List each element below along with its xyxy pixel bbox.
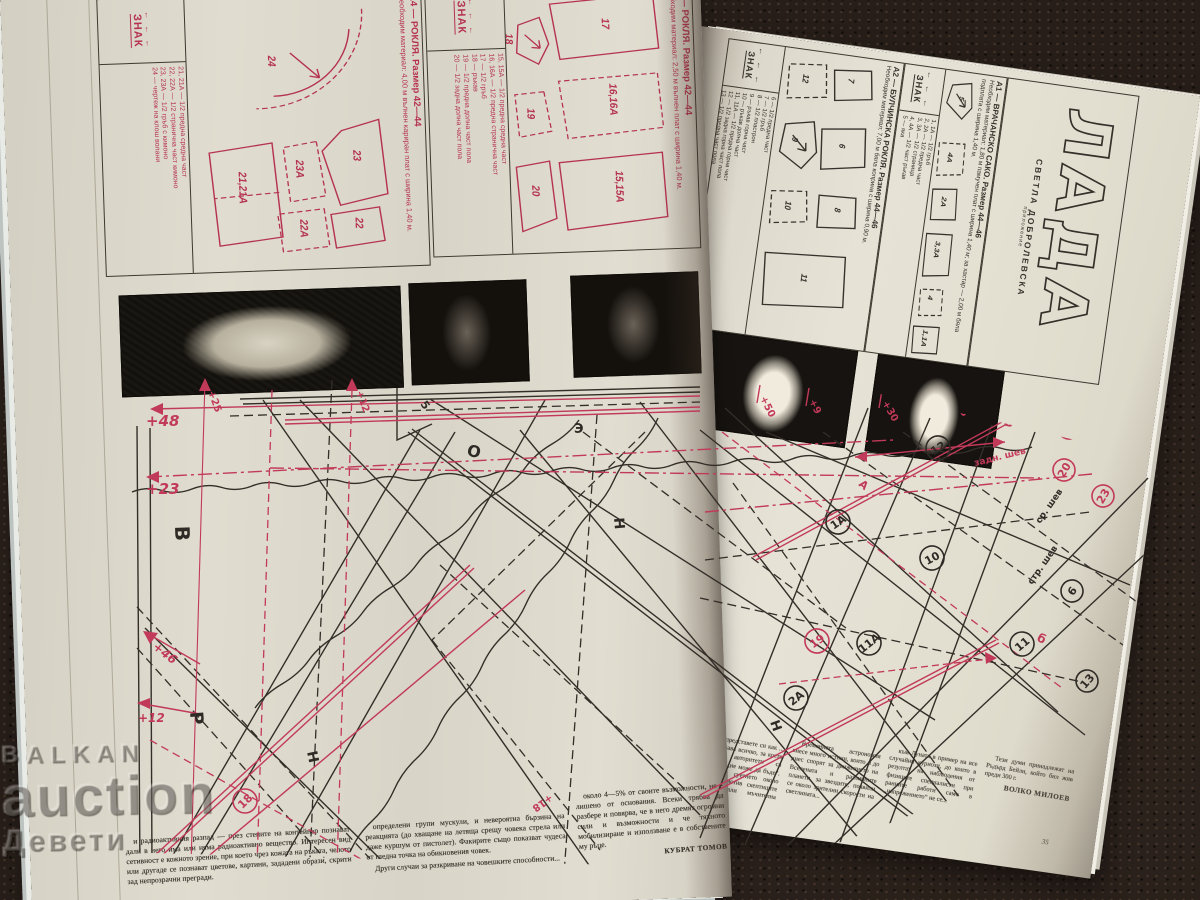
article-column-2: определени групи мускули, и невероятна б…: [365, 811, 568, 877]
article-column-r4: Тези думи принадлежат на Ръдърд Бейли, к…: [982, 754, 1075, 804]
piece-label: 20: [529, 184, 541, 197]
article-column-1: и радиоактивния разпад — през стените на…: [125, 824, 353, 889]
piece-label: 23А: [293, 159, 306, 179]
pattern-panel-a4: А4 — РОКЛЯ. Размер 42—44 Необходим матер…: [96, 0, 431, 277]
znak-block: ← ← ← ЗНАК: [723, 39, 785, 93]
panel-a3-piece-shapes: 20 18 19 17 16,16А 15,15А: [504, 0, 675, 254]
article-column-r2: Временната астрономия внесе много истини…: [785, 739, 882, 812]
piece-label: 1,1А: [919, 329, 929, 347]
fashion-photo-checked-dress: [119, 286, 404, 398]
piece-label: 17: [599, 18, 611, 31]
page-crease: [46, 0, 79, 900]
znak-block: ← ← ← ЗНАК: [425, 0, 505, 52]
znak-label: ЗНАК: [130, 14, 144, 48]
piece-label: 10: [783, 200, 795, 211]
znak-label: ЗНАК: [454, 0, 468, 34]
piece-label: 21,21А: [236, 171, 250, 204]
piece-label: 8: [833, 207, 844, 213]
notch-marks: ← ← ←: [466, 0, 476, 36]
article-text: и радиоактивния разпад — през стените на…: [125, 824, 353, 887]
piece-label: 15,15А: [613, 170, 626, 202]
piece-label: 23: [350, 149, 363, 162]
panel-a4-piece-shapes: 23 23А 22А 22 24 21,21А: [184, 0, 404, 273]
znak-block: ← ← ← ЗНАК: [97, 0, 185, 65]
article-column-r3: към Луната в пример на все случайни кури…: [883, 746, 978, 811]
piece-label: 6: [837, 143, 848, 149]
piece-label: 22А: [297, 218, 310, 238]
piece-label: 11: [799, 273, 810, 283]
piece-label: 22: [353, 216, 366, 229]
piece-label: 2А: [939, 195, 949, 208]
panel-a3-legend: 15, 15А — 1/2 предна средна част 16, 16А…: [427, 49, 512, 257]
fashion-photo-dark: [408, 279, 529, 385]
piece-label: 12: [801, 74, 813, 85]
piece-label: 4А: [945, 151, 955, 164]
article-text: към Луната в пример на все случайни кури…: [883, 746, 978, 809]
fashion-photo-white-dress: [864, 354, 1004, 469]
panel-a4-legend: 21, 21А — 1/2 предна средна част 22, 22А…: [100, 62, 193, 276]
photo-of-magazine-spread: А4 — РОКЛЯ. Размер 42—44 Необходим матер…: [0, 0, 1200, 900]
piece-label: 4: [926, 294, 935, 302]
article-text: Временната астрономия внесе много истини…: [785, 739, 881, 810]
piece-label: 24: [265, 54, 278, 67]
znak-block: ← ← ← ЗНАК: [899, 64, 945, 116]
piece-label: 7: [846, 78, 857, 84]
piece-label: 16,16А: [607, 83, 620, 115]
left-page: А4 — РОКЛЯ. Размер 42—44 Необходим матер…: [0, 0, 732, 900]
piece-label: 19: [525, 108, 537, 120]
page-number: 35: [1041, 838, 1049, 847]
piece-label: 3,3А: [932, 241, 942, 259]
notch-marks: ← ← ←: [143, 11, 153, 50]
piece-label: 9: [790, 137, 801, 143]
